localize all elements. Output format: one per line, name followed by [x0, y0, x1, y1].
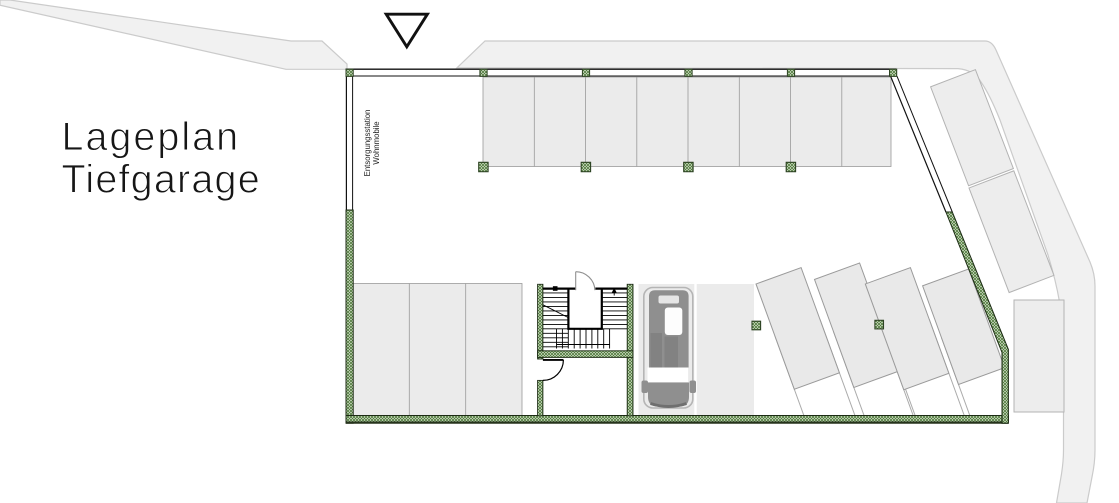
- svg-text:Entsorgungsstation: Entsorgungsstation: [363, 110, 372, 177]
- svg-text:Lageplan: Lageplan: [62, 115, 241, 159]
- svg-text:Tiefgarage: Tiefgarage: [62, 157, 261, 201]
- svg-text:Wohnmobile: Wohnmobile: [372, 121, 381, 164]
